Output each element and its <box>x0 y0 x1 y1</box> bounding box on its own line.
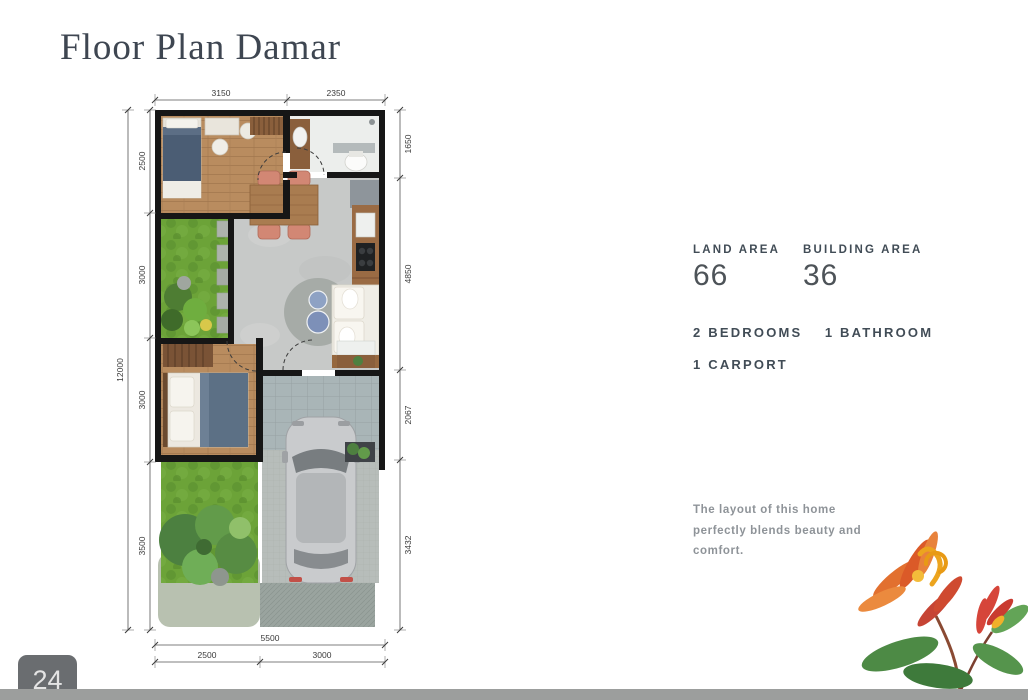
dim-left-1: 2500 <box>137 151 147 170</box>
dim-right-1: 1650 <box>403 134 413 153</box>
dim-top-1: 3150 <box>212 88 231 98</box>
shoe-cabinet <box>337 341 375 368</box>
dim-left-2: 3000 <box>137 265 147 284</box>
floor-plan-svg: 3150 2350 12000 2500 3000 3000 3500 <box>100 85 440 685</box>
dim-right-4: 3432 <box>403 535 413 554</box>
brochure-page: Floor Plan Damar <box>0 0 1028 700</box>
land-area-label: LAND AREA <box>693 244 795 256</box>
dim-left-3: 3000 <box>137 390 147 409</box>
dim-right-2: 4850 <box>403 264 413 283</box>
features-block: 2 BEDROOMS 1 BATHROOM 1 CARPORT <box>693 325 993 372</box>
floor-plan-figure: 3150 2350 12000 2500 3000 3000 3500 <box>100 85 440 685</box>
bottom-strip <box>0 689 1028 700</box>
dim-left-total: 12000 <box>115 358 125 382</box>
carport-text: 1 CARPORT <box>693 357 788 372</box>
land-area-block: LAND AREA 66 <box>693 244 795 293</box>
dim-bottom-total: 5500 <box>261 633 280 643</box>
land-area-value: 66 <box>693 259 795 293</box>
page-title: Floor Plan Damar <box>60 26 341 69</box>
courtyard-garden-floor <box>161 219 230 338</box>
car <box>282 417 360 583</box>
dim-bottom-1: 2500 <box>198 650 217 660</box>
bedrooms-text: 2 BEDROOMS <box>693 325 819 340</box>
dim-left-4: 3500 <box>137 536 147 555</box>
entrance-planter <box>345 442 375 462</box>
flower-illustration <box>840 524 1028 692</box>
dim-right-3: 2067 <box>403 405 413 424</box>
bathroom-text: 1 BATHROOM <box>825 325 933 340</box>
kitchen <box>350 180 379 290</box>
building-area-label: BUILDING AREA <box>803 244 923 256</box>
building-area-value: 36 <box>803 259 923 293</box>
specs-panel: LAND AREA 66 BUILDING AREA 36 2 BEDROOMS… <box>693 244 993 372</box>
dim-bottom-2: 3000 <box>313 650 332 660</box>
dim-top-2: 2350 <box>327 88 346 98</box>
building-area-block: BUILDING AREA 36 <box>803 244 923 293</box>
